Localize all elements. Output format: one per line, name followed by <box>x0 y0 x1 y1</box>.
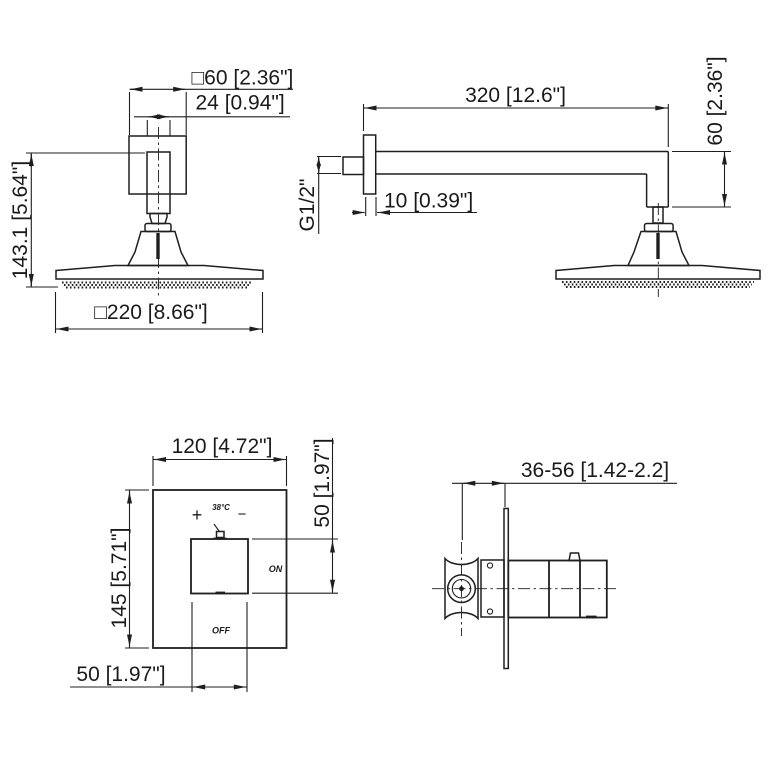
view-showerhead-front: □60 [2.36"] 24 [0.94"] 143.1 [5.64"] □22… <box>9 67 293 334</box>
dim-head-size: □220 [8.66"] <box>94 301 208 324</box>
showerhead-dimensions: □60 [2.36"] 24 [0.94"] 143.1 [5.64"] □22… <box>9 67 293 334</box>
view-shower-arm-side: 320 [12.6"] 60 [2.36"] G1/2" 10 [0.39"] <box>296 56 760 297</box>
dim-thread-size: G1/2" <box>296 179 319 232</box>
dim-knob-height: 50 [1.97"] <box>311 438 334 527</box>
dim-arm-drop: 60 [2.36"] <box>704 56 727 145</box>
plus-label: + <box>192 505 203 525</box>
dim-flange-thickness: 10 [0.39"] <box>384 190 473 213</box>
dim-plate-height: 145 [5.71"] <box>108 528 131 629</box>
arm-wall-flange <box>343 135 376 194</box>
dim-arm-length: 320 [12.6"] <box>465 84 566 107</box>
valve-knob <box>191 524 248 594</box>
minus-label: − <box>238 506 247 523</box>
showerhead-stem <box>145 152 171 232</box>
dim-head-overall-height: 143.1 [5.64"] <box>9 161 32 279</box>
technical-drawing-sheet: □60 [2.36"] 24 [0.94"] 143.1 [5.64"] □22… <box>0 0 768 768</box>
off-label: OFF <box>212 626 230 636</box>
dim-knob-width: 50 [1.97"] <box>76 663 165 686</box>
dim-wall-depth-range: 36-56 [1.42-2.2] <box>521 459 669 482</box>
temperature-label: 38°C <box>212 503 230 512</box>
view-valve-front: + 38°C − ON OFF 120 <box>70 435 338 692</box>
valve-cartridge-body <box>508 553 607 618</box>
valve-front-dimensions: 120 [4.72"] 145 [5.71"] 50 [1.97"] 50 [1… <box>70 435 338 692</box>
on-label: ON <box>269 564 283 574</box>
showerhead-spray-disc <box>56 266 263 288</box>
dim-head-flange-size: □60 [2.36"] <box>192 67 294 90</box>
drawing-canvas: □60 [2.36"] 24 [0.94"] 143.1 [5.64"] □22… <box>0 0 768 768</box>
dim-plate-width: 120 [4.72"] <box>172 435 273 458</box>
showerhead-ball-joint <box>128 232 188 266</box>
view-valve-side: 36-56 [1.42-2.2] <box>432 459 677 669</box>
dim-head-stem-width: 24 [0.94"] <box>196 92 285 115</box>
valve-trim-plate <box>153 490 287 648</box>
valve-panel-markings: + 38°C − ON OFF <box>192 503 283 636</box>
showerhead-wall-flange <box>129 136 186 194</box>
valve-side-dimensions: 36-56 [1.42-2.2] <box>452 459 677 540</box>
